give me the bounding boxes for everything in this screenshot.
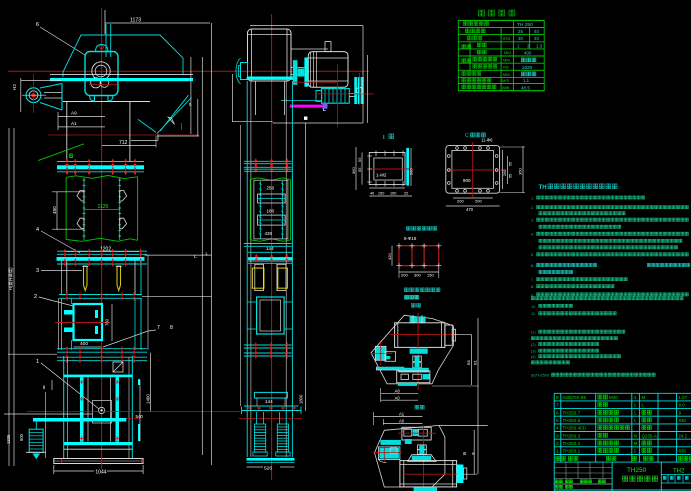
svg-text:400: 400 bbox=[80, 341, 88, 347]
svg-text:712: 712 bbox=[119, 140, 128, 146]
svg-text:TH250: TH250 bbox=[627, 467, 647, 474]
svg-text:11-Φ6: 11-Φ6 bbox=[481, 138, 493, 143]
svg-text:1800: 1800 bbox=[299, 394, 304, 404]
svg-text:7.: 7. bbox=[531, 278, 534, 282]
svg-text:TH250.3: TH250.3 bbox=[563, 433, 581, 438]
svg-text:250: 250 bbox=[267, 186, 275, 191]
svg-text:360: 360 bbox=[518, 168, 523, 175]
svg-text:Ⅱ: Ⅱ bbox=[43, 385, 45, 391]
svg-text:200: 200 bbox=[503, 170, 507, 176]
svg-text:5: 5 bbox=[556, 418, 559, 424]
svg-text:180: 180 bbox=[267, 209, 275, 214]
svg-text:1044: 1044 bbox=[95, 470, 106, 476]
svg-text:6: 6 bbox=[556, 410, 559, 416]
svg-text:A1: A1 bbox=[399, 412, 405, 417]
svg-text:1: 1 bbox=[634, 449, 637, 455]
svg-text:GB5782-86: GB5782-86 bbox=[563, 395, 587, 400]
svg-text:Q235-A: Q235-A bbox=[642, 433, 657, 438]
svg-text:1: 1 bbox=[634, 403, 637, 409]
svg-text:144: 144 bbox=[265, 399, 273, 404]
svg-text:400: 400 bbox=[524, 51, 532, 56]
svg-text:526: 526 bbox=[264, 466, 272, 472]
svg-text:150: 150 bbox=[427, 273, 434, 278]
svg-text:mm: mm bbox=[503, 36, 510, 41]
svg-text:25: 25 bbox=[518, 29, 523, 34]
svg-text:150: 150 bbox=[390, 192, 396, 196]
svg-text:144: 144 bbox=[266, 246, 274, 251]
svg-text:(8)TH2500: (8)TH2500 bbox=[531, 374, 549, 378]
svg-text:1: 1 bbox=[634, 410, 637, 416]
svg-text:1: 1 bbox=[556, 449, 559, 455]
svg-text:24.2: 24.2 bbox=[679, 433, 688, 438]
svg-text:1.1: 1.1 bbox=[523, 78, 530, 83]
svg-text:3.: 3. bbox=[531, 219, 534, 223]
svg-text:40: 40 bbox=[534, 36, 539, 41]
svg-text:M: M bbox=[634, 441, 638, 447]
svg-text:TH250.2: TH250.2 bbox=[563, 441, 581, 446]
svg-text:1: 1 bbox=[36, 359, 39, 365]
svg-text:470: 470 bbox=[466, 207, 474, 212]
svg-text:55: 55 bbox=[509, 174, 513, 178]
svg-text:≥320: ≥320 bbox=[522, 65, 533, 70]
svg-text:760: 760 bbox=[105, 318, 110, 326]
svg-text:MM: MM bbox=[503, 72, 510, 77]
svg-text:5.: 5. bbox=[531, 253, 534, 257]
svg-text:2: 2 bbox=[556, 441, 559, 447]
svg-text:430: 430 bbox=[265, 231, 273, 236]
svg-text:540: 540 bbox=[136, 414, 144, 419]
svg-text:2.: 2. bbox=[531, 206, 534, 210]
svg-text:7: 7 bbox=[157, 325, 160, 331]
svg-text:/MB: /MB bbox=[502, 85, 509, 90]
svg-text:8.: 8. bbox=[531, 285, 534, 289]
svg-text:(3): (3) bbox=[531, 350, 536, 354]
svg-text:MM: MM bbox=[503, 58, 510, 63]
svg-text:TH250.6: TH250.6 bbox=[563, 418, 581, 423]
svg-text:360: 360 bbox=[351, 167, 356, 174]
svg-text:3: 3 bbox=[556, 433, 559, 439]
svg-text:B: B bbox=[69, 154, 74, 160]
svg-text:22: 22 bbox=[404, 192, 408, 196]
svg-text:900: 900 bbox=[463, 178, 471, 183]
svg-text:1.07: 1.07 bbox=[679, 395, 688, 400]
svg-text:H(提升高度): H(提升高度) bbox=[7, 267, 14, 290]
svg-text:(2): (2) bbox=[531, 343, 536, 347]
svg-text:TH250.7: TH250.7 bbox=[563, 410, 581, 415]
svg-text:1335: 1335 bbox=[6, 434, 11, 444]
svg-text:48.5: 48.5 bbox=[521, 85, 530, 90]
svg-text:1120: 1120 bbox=[98, 204, 109, 210]
svg-text:1173: 1173 bbox=[130, 18, 141, 24]
svg-text:M: M bbox=[642, 395, 646, 400]
svg-text:1: 1 bbox=[634, 418, 637, 424]
svg-text:835: 835 bbox=[679, 449, 687, 454]
svg-text:1400: 1400 bbox=[146, 394, 151, 404]
svg-text:55: 55 bbox=[357, 157, 362, 162]
svg-text:TH2: TH2 bbox=[673, 469, 685, 475]
svg-text:TH250.4(3): TH250.4(3) bbox=[563, 426, 587, 431]
svg-text:MM: MM bbox=[504, 50, 511, 55]
svg-text:TH 250: TH 250 bbox=[517, 22, 533, 28]
svg-text:(1): (1) bbox=[531, 331, 536, 335]
svg-text:200: 200 bbox=[457, 199, 464, 204]
svg-text:M/S: M/S bbox=[502, 78, 509, 83]
svg-text:8: 8 bbox=[556, 395, 559, 401]
svg-text:4: 4 bbox=[556, 426, 559, 432]
svg-text:6.: 6. bbox=[531, 264, 534, 268]
svg-text:4: 4 bbox=[634, 395, 637, 401]
svg-text:10.: 10. bbox=[531, 305, 536, 309]
svg-text:150: 150 bbox=[378, 192, 384, 196]
svg-text:300: 300 bbox=[414, 273, 421, 278]
svg-text:L: L bbox=[194, 254, 197, 259]
svg-text:B1: B1 bbox=[473, 359, 478, 365]
svg-text:A0: A0 bbox=[395, 396, 401, 401]
svg-text:200: 200 bbox=[401, 273, 408, 278]
svg-text:420: 420 bbox=[387, 253, 392, 260]
svg-text:480: 480 bbox=[52, 206, 57, 214]
svg-text:1.: 1. bbox=[531, 196, 534, 200]
svg-text:30: 30 bbox=[518, 36, 523, 41]
svg-text:40: 40 bbox=[370, 192, 374, 196]
svg-text:2: 2 bbox=[34, 294, 37, 300]
svg-text:3: 3 bbox=[36, 268, 39, 274]
svg-text:H2: H2 bbox=[12, 84, 17, 90]
svg-text:a: a bbox=[471, 452, 476, 455]
svg-text:A0: A0 bbox=[399, 419, 405, 424]
svg-text:TH: TH bbox=[539, 185, 547, 191]
svg-text:M20: M20 bbox=[609, 395, 618, 400]
svg-text:B5: B5 bbox=[466, 359, 471, 365]
svg-text:1.3: 1.3 bbox=[536, 43, 543, 48]
svg-text:N: N bbox=[634, 433, 638, 439]
svg-text:KN: KN bbox=[503, 65, 509, 70]
svg-text:1-M2: 1-M2 bbox=[376, 173, 387, 178]
svg-text:8: 8 bbox=[170, 325, 173, 331]
svg-text:200: 200 bbox=[475, 199, 482, 204]
svg-text:A9: A9 bbox=[71, 111, 77, 116]
svg-text:A8: A8 bbox=[395, 388, 401, 393]
svg-text:4: 4 bbox=[36, 227, 39, 233]
svg-text:11.: 11. bbox=[531, 312, 536, 316]
svg-text:B: B bbox=[462, 452, 467, 455]
svg-text:7: 7 bbox=[556, 403, 559, 409]
svg-text:4.: 4. bbox=[531, 233, 534, 237]
svg-text:835: 835 bbox=[679, 418, 687, 423]
svg-text:9.0: 9.0 bbox=[679, 403, 686, 408]
svg-text:6: 6 bbox=[36, 22, 39, 28]
svg-text:C: C bbox=[465, 133, 469, 139]
svg-text:A1: A1 bbox=[71, 121, 77, 126]
svg-text:(4): (4) bbox=[531, 355, 536, 359]
svg-text:55: 55 bbox=[509, 162, 513, 166]
svg-text:55: 55 bbox=[357, 167, 362, 172]
svg-text:500: 500 bbox=[19, 433, 24, 441]
svg-text:8-Φ18: 8-Φ18 bbox=[404, 236, 417, 241]
svg-text:TH250.1: TH250.1 bbox=[563, 449, 581, 454]
svg-text:L: L bbox=[206, 251, 209, 256]
svg-text:40: 40 bbox=[534, 29, 539, 34]
